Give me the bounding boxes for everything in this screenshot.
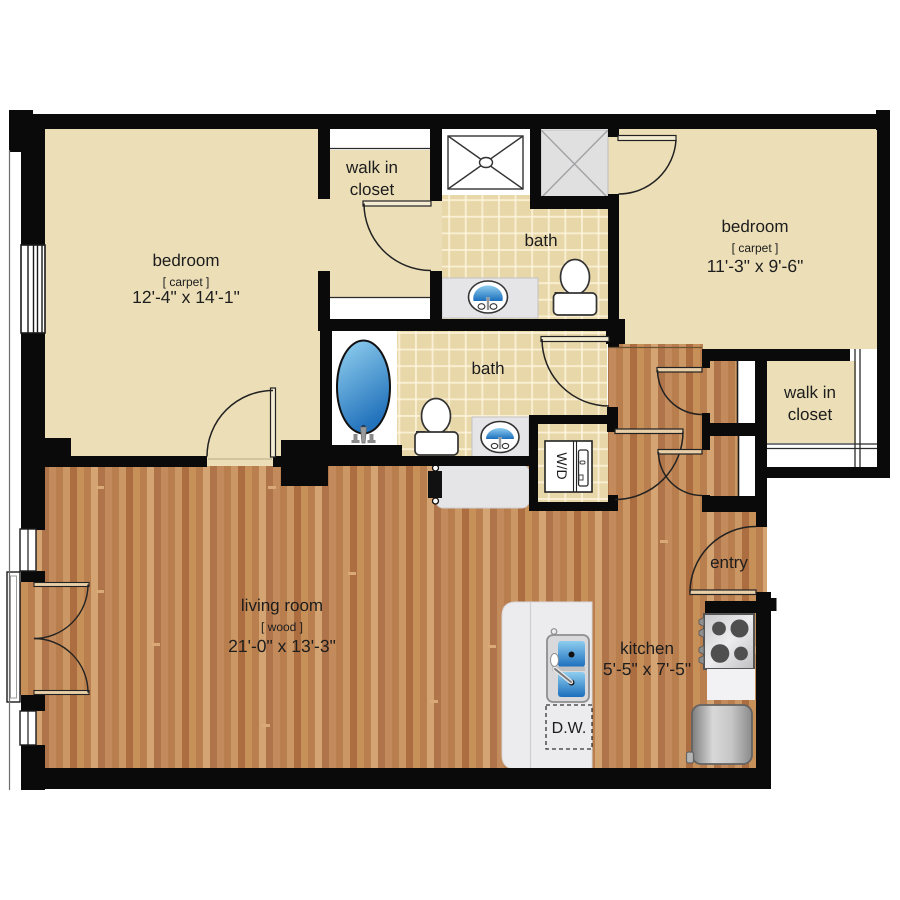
svg-text:walk in: walk in	[783, 383, 836, 402]
svg-text:kitchen: kitchen	[620, 639, 674, 658]
svg-text:11'-3" x 9'-6": 11'-3" x 9'-6"	[707, 256, 804, 276]
svg-text:12'-4" x 14'-1": 12'-4" x 14'-1"	[132, 287, 240, 307]
svg-text:21'-0" x 13'-3": 21'-0" x 13'-3"	[228, 636, 336, 656]
svg-text:living room: living room	[241, 596, 323, 615]
svg-text:5'-5" x 7'-5": 5'-5" x 7'-5"	[603, 659, 691, 679]
svg-text:bedroom: bedroom	[152, 251, 219, 270]
svg-text:bedroom: bedroom	[721, 217, 788, 236]
svg-text:bath: bath	[471, 359, 504, 378]
svg-text:closet: closet	[788, 405, 833, 424]
svg-text:walk in: walk in	[345, 158, 398, 177]
svg-text:bath: bath	[524, 231, 557, 250]
svg-text:D.W.: D.W.	[552, 720, 587, 737]
svg-text:W/D: W/D	[554, 452, 570, 479]
svg-text:[ wood ]: [ wood ]	[261, 620, 303, 634]
svg-text:[ carpet ]: [ carpet ]	[732, 241, 779, 255]
svg-text:entry: entry	[710, 553, 748, 572]
svg-text:closet: closet	[350, 180, 395, 199]
